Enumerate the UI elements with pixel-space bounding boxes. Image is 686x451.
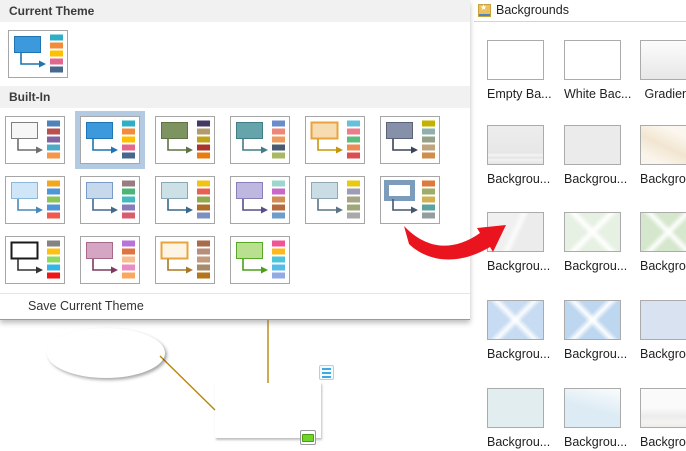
background-thumbnail[interactable]: [487, 125, 544, 165]
background-label: Backgrou...: [487, 435, 544, 449]
background-label: Backgrou...: [640, 172, 686, 186]
background-item[interactable]: Backgrou...: [640, 300, 686, 361]
background-thumbnail[interactable]: [564, 40, 621, 80]
theme-preview: [231, 237, 289, 283]
background-thumbnail[interactable]: [487, 212, 544, 252]
theme-preview: [81, 117, 139, 163]
theme-preview: [81, 177, 139, 223]
background-thumbnail[interactable]: [640, 40, 686, 80]
theme-preview: [6, 237, 64, 283]
background-item[interactable]: Backgrou...: [640, 212, 686, 273]
background-label: Backgrou...: [564, 435, 621, 449]
theme-thumbnail[interactable]: [80, 236, 140, 284]
save-current-theme-button[interactable]: Save Current Theme: [0, 293, 470, 317]
background-label: Backgrou...: [487, 259, 544, 273]
theme-thumbnail[interactable]: [380, 176, 440, 224]
theme-thumbnail[interactable]: [80, 176, 140, 224]
background-thumbnail[interactable]: [640, 388, 686, 428]
background-thumbnail[interactable]: [564, 125, 621, 165]
background-thumbnail[interactable]: [564, 212, 621, 252]
theme-preview: [231, 117, 289, 163]
theme-thumbnail[interactable]: [155, 236, 215, 284]
theme-thumbnail[interactable]: [5, 116, 65, 164]
background-thumbnail[interactable]: [640, 212, 686, 252]
theme-row: [5, 116, 440, 164]
backgrounds-title: Backgrounds: [496, 3, 569, 17]
fill-color-icon[interactable]: [300, 430, 316, 445]
theme-thumbnail[interactable]: [305, 116, 365, 164]
list-icon[interactable]: [319, 365, 334, 380]
theme-thumbnail[interactable]: [230, 116, 290, 164]
background-thumbnail[interactable]: [487, 40, 544, 80]
theme-thumbnail[interactable]: [380, 116, 440, 164]
background-item[interactable]: Backgrou...: [487, 300, 544, 361]
background-item[interactable]: Backgrou...: [564, 212, 621, 273]
background-thumbnail[interactable]: [640, 300, 686, 340]
theme-panel: Current Theme Built-In: [0, 0, 470, 320]
background-item[interactable]: White Bac...: [564, 40, 621, 101]
theme-thumbnail-selected[interactable]: [80, 116, 140, 164]
theme-thumbnail[interactable]: [230, 236, 290, 284]
theme-thumbnail[interactable]: [155, 116, 215, 164]
theme-preview: [9, 31, 67, 77]
background-label: White Bac...: [564, 87, 621, 101]
background-label: Backgrou...: [487, 172, 544, 186]
backgrounds-panel: Backgrounds Empty Ba...White Bac...Gradi…: [474, 0, 686, 451]
background-label: Backgrou...: [564, 259, 621, 273]
theme-preview: [81, 237, 139, 283]
current-theme-thumbnail[interactable]: [8, 30, 68, 78]
theme-thumbnail[interactable]: [5, 236, 65, 284]
background-item[interactable]: Backgrou...: [487, 388, 544, 449]
theme-preview: [381, 177, 439, 223]
theme-thumbnail[interactable]: [155, 176, 215, 224]
background-label: Backgrou...: [564, 347, 621, 361]
background-item[interactable]: Empty Ba...: [487, 40, 544, 101]
background-label: Empty Ba...: [487, 87, 544, 101]
background-item[interactable]: Backgrou...: [564, 300, 621, 361]
theme-preview: [156, 237, 214, 283]
subject-id-ellipse[interactable]: Subject Id: [47, 328, 165, 378]
background-thumbnail[interactable]: [564, 300, 621, 340]
background-label: Backgrou...: [487, 347, 544, 361]
background-item[interactable]: Backgrou...: [564, 388, 621, 449]
theme-preview: [381, 117, 439, 163]
background-label: Backgrou...: [640, 435, 686, 449]
background-thumbnail[interactable]: [487, 300, 544, 340]
background-label: Gradient: [640, 87, 686, 101]
background-item[interactable]: Backgrou...: [640, 388, 686, 449]
background-item[interactable]: Backgrou...: [487, 212, 544, 273]
subject-id-label: Subject Id: [77, 346, 135, 361]
background-item[interactable]: Backgrou...: [564, 125, 621, 186]
background-label: Backgrou...: [640, 259, 686, 273]
theme-thumbnail[interactable]: [230, 176, 290, 224]
current-theme-header: Current Theme: [0, 0, 470, 22]
theme-preview: [6, 117, 64, 163]
theme-row: [5, 176, 440, 224]
background-item[interactable]: Gradient: [640, 40, 686, 101]
theme-preview: [306, 177, 364, 223]
theme-preview: [156, 117, 214, 163]
theme-preview: [231, 177, 289, 223]
background-item[interactable]: Backgrou...: [487, 125, 544, 186]
background-thumbnail[interactable]: [564, 388, 621, 428]
background-thumbnail[interactable]: [640, 125, 686, 165]
background-item[interactable]: Backgrou...: [640, 125, 686, 186]
theme-thumbnail[interactable]: [305, 176, 365, 224]
theme-preview: [156, 177, 214, 223]
background-label: Backgrou...: [564, 172, 621, 186]
theme-row: [5, 236, 290, 284]
backgrounds-star-icon: [478, 4, 491, 17]
background-thumbnail[interactable]: [487, 388, 544, 428]
theme-preview: [6, 177, 64, 223]
built-in-header: Built-In: [0, 86, 470, 108]
connector-line-diagonal[interactable]: [160, 356, 215, 410]
theme-thumbnail[interactable]: [5, 176, 65, 224]
theme-preview: [306, 117, 364, 163]
background-label: Backgrou...: [640, 347, 686, 361]
subject-label: Subject: [246, 403, 289, 418]
backgrounds-panel-header: Backgrounds: [474, 0, 686, 22]
